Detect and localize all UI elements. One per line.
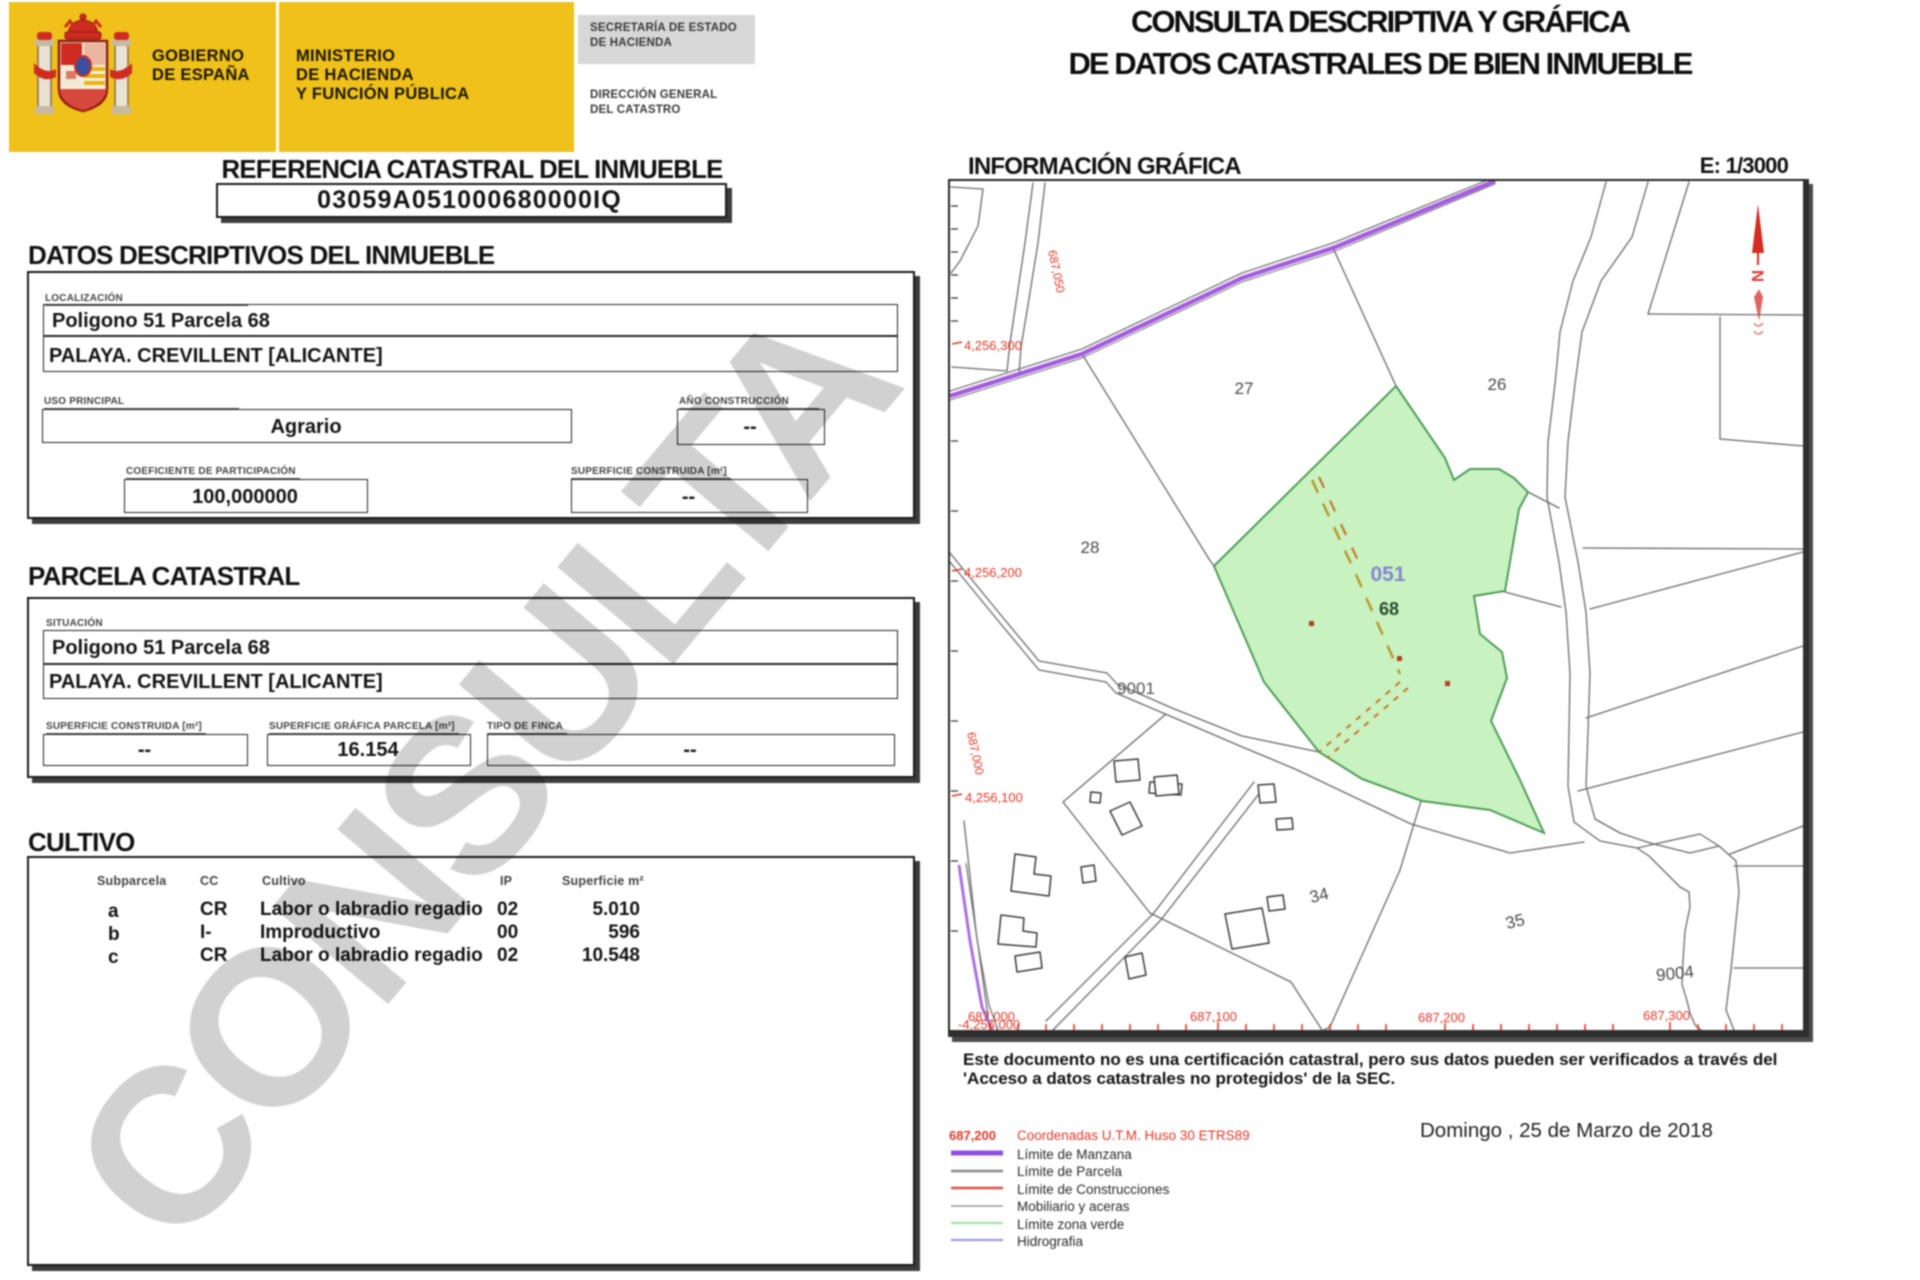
svg-text:4,256,200: 4,256,200 [964, 565, 1022, 580]
svg-text:9001: 9001 [1117, 679, 1155, 698]
svg-text:4,256,300: 4,256,300 [964, 338, 1022, 353]
svg-text:4,256,100: 4,256,100 [965, 790, 1023, 805]
svg-text:687,050: 687,050 [1045, 249, 1068, 295]
svg-text:051: 051 [1370, 563, 1405, 586]
svg-text:N: N [1748, 270, 1767, 282]
svg-text:27: 27 [1235, 379, 1254, 398]
svg-text:9004: 9004 [1655, 962, 1695, 985]
svg-text:68: 68 [1379, 599, 1399, 619]
svg-text:35: 35 [1504, 910, 1527, 933]
svg-text:687,300: 687,300 [1643, 1008, 1690, 1023]
svg-text:34: 34 [1308, 884, 1331, 907]
svg-text:687,100: 687,100 [1190, 1009, 1237, 1024]
svg-text:-4,256,000: -4,256,000 [958, 1017, 1020, 1030]
svg-text:26: 26 [1488, 375, 1507, 394]
svg-text:687,000: 687,000 [964, 731, 987, 777]
svg-text:28: 28 [1081, 538, 1100, 557]
svg-text:687,200: 687,200 [1418, 1010, 1465, 1025]
